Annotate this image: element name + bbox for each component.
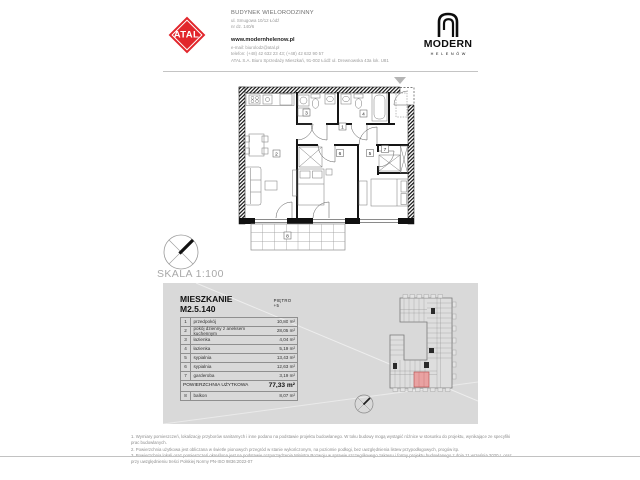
info-panel: MIESZKANIE M2.5.140 PIĘTRO +5 1przedpokó…: [163, 283, 478, 424]
site-plan-highlight: [414, 372, 429, 387]
room-row: 3łazienka4,04 m²: [181, 336, 297, 345]
room-row: 6sypialnia12,63 m²: [181, 363, 297, 372]
modern-helenow-logo: MODERN HELENÓW: [419, 11, 477, 56]
room-row: 4łazienka5,19 m²: [181, 345, 297, 354]
footer-note: 3. Powierzchnia lokali oraz pomieszczeń …: [131, 453, 513, 465]
room-label: 1: [339, 123, 346, 130]
room-label-6: 6: [339, 151, 342, 157]
floor-label: PIĘTRO +5: [274, 298, 298, 308]
room-label-4: 4: [362, 111, 365, 117]
modern-arch-icon: [436, 11, 460, 37]
apartment-table: MIESZKANIE M2.5.140 PIĘTRO +5 1przedpokó…: [180, 294, 298, 401]
scale-label: SKALA 1:100: [157, 268, 224, 280]
room-label-7: 7: [384, 147, 387, 153]
room-table: 1przedpokój10,80 m²2pokój dzienny z anek…: [180, 317, 298, 401]
balcony: [251, 224, 345, 250]
room-row: 2pokój dzienny z aneksem kuchennym28,05 …: [181, 327, 297, 336]
office-text: ATAL S.A. Biuro Sprzedaży Mieszkań, 91-0…: [231, 58, 416, 63]
flyer-page: ATAL BUDYNEK WIELORODZINNY ul. Smugowa 1…: [0, 0, 640, 480]
balcony-name: balkon: [191, 392, 269, 400]
balcony-row: 8 balkon 8,07 m²: [181, 392, 297, 401]
room-label: 5: [367, 150, 374, 157]
footer-note: 1. Wymiary pomieszczeń, lokalizację przy…: [131, 434, 513, 446]
room-row: 5sypialnia13,43 m²: [181, 354, 297, 363]
header-divider: [163, 71, 478, 72]
total-label: POWIERZCHNIA UŻYTKOWA: [181, 381, 263, 391]
email-text: e-mail: biurolodz@atal.pl: [231, 45, 416, 50]
footer-notes: 1. Wymiary pomieszczeń, lokalizację przy…: [131, 434, 513, 466]
room-label-2: 2: [275, 151, 278, 157]
building-plot: nr dz. 140/6: [231, 24, 416, 29]
header-info: BUDYNEK WIELORODZINNY ul. Smugowa 10/12 …: [231, 10, 416, 63]
building-address: ul. Smugowa 10/12 Łódź: [231, 18, 416, 23]
room-label: 2: [273, 150, 280, 157]
floor-plan-drawing: 1 2 3 4 5 6 7 8: [228, 82, 428, 277]
atal-logo: ATAL: [163, 11, 210, 58]
room-label: 4: [360, 110, 367, 117]
total-row: POWIERZCHNIA UŻYTKOWA 77,33 m²: [181, 381, 297, 392]
footer-note: 2. Powierzchnia użytkowa jest obliczana …: [131, 447, 513, 453]
atal-logo-text: ATAL: [174, 29, 200, 40]
bottom-divider: [0, 456, 640, 457]
phone-text: telefon: (+48) 42 632 23 43; (+48) 42 63…: [231, 51, 416, 56]
room-label-5: 5: [369, 151, 372, 157]
room-label: 8: [284, 232, 291, 239]
website-text: www.modernhelenow.pl: [231, 37, 416, 43]
room-label: 7: [382, 146, 389, 153]
room-label-1: 1: [341, 124, 344, 130]
room-rows: 1przedpokój10,80 m²2pokój dzienny z anek…: [181, 318, 297, 381]
balcony-no: 8: [181, 392, 191, 400]
room-label: 6: [337, 150, 344, 157]
apartment-title: MIESZKANIE M2.5.140: [180, 294, 269, 314]
room-label: 3: [303, 109, 310, 116]
room-label-8: 8: [286, 233, 289, 239]
room-row: 7garderoba3,19 m²: [181, 372, 297, 381]
balcony-area: 8,07 m²: [269, 392, 297, 400]
brand-subtitle: HELENÓW: [419, 52, 477, 56]
building-title: BUDYNEK WIELORODZINNY: [231, 10, 416, 16]
brand-name: MODERN: [419, 38, 477, 50]
exterior-walls: [239, 87, 414, 224]
interior-walls: [297, 93, 408, 218]
site-plan: [385, 291, 480, 418]
total-area: 77,33 m²: [263, 381, 297, 391]
room-label-3: 3: [305, 110, 308, 116]
site-compass-icon: [352, 392, 378, 418]
